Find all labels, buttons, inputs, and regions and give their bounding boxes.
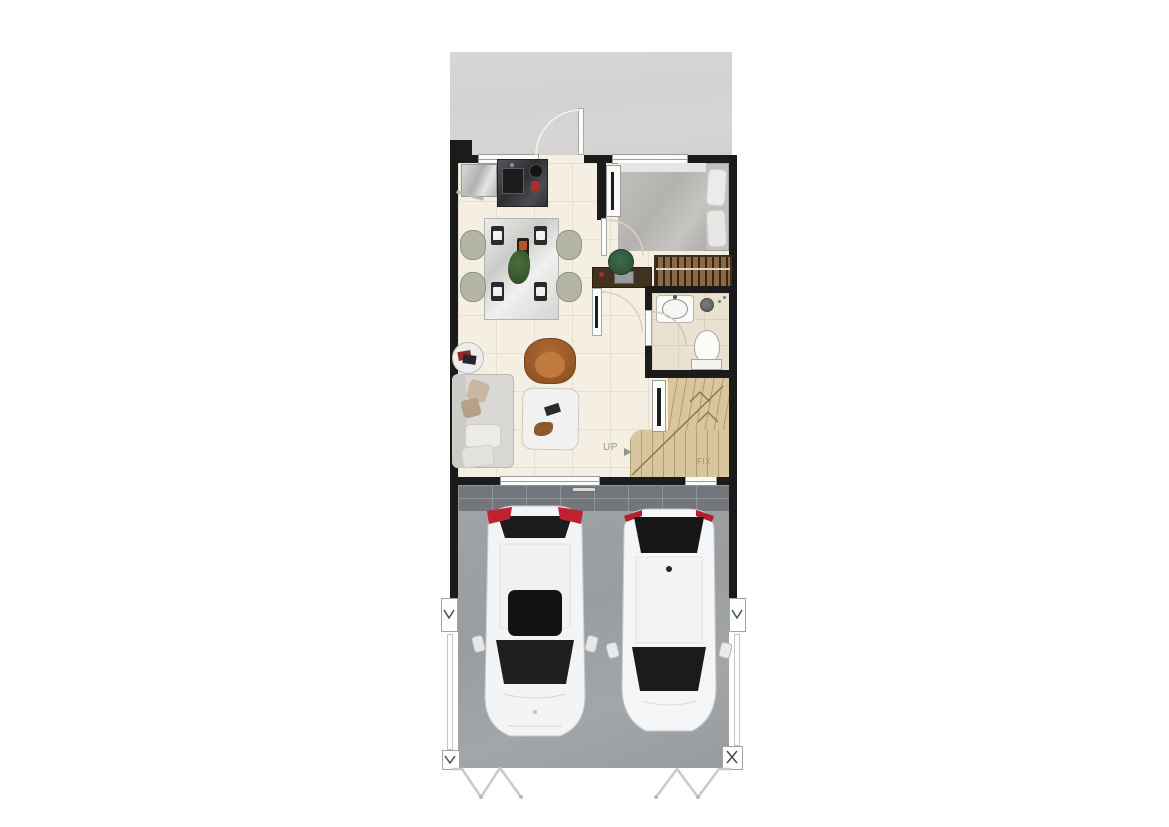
bed-pillow <box>706 210 727 248</box>
entry-door-leaf <box>578 108 584 155</box>
gate-pivot <box>654 795 658 799</box>
bedroom-divider-wall <box>597 163 606 220</box>
cooktop-burner <box>529 164 543 178</box>
bottom-wall-mid <box>600 477 685 485</box>
gate-pivot <box>519 795 523 799</box>
plate <box>493 287 502 296</box>
dining-chair <box>460 230 486 260</box>
column-post-left <box>441 598 458 632</box>
hallway-door-detail <box>595 296 598 328</box>
bedroom-door-leaf <box>601 218 607 256</box>
bathroom-wall-left-lower <box>645 346 652 370</box>
desk-accessory <box>599 272 604 277</box>
bottom-wall-right <box>717 477 737 485</box>
drain-cover <box>572 487 596 492</box>
patio-wall-stub <box>450 140 472 155</box>
stair-railing-detail <box>657 388 661 426</box>
garage-floor <box>458 511 729 768</box>
bed-sheet-fold <box>618 163 706 172</box>
dining-chair <box>556 272 582 302</box>
washbasin <box>662 299 688 319</box>
bottom-wall-left <box>450 477 500 485</box>
bathroom-wall-top <box>645 286 737 293</box>
shower-head <box>700 298 714 312</box>
tray-food <box>519 241 527 250</box>
sofa-cushion <box>461 444 495 469</box>
stairs-upper-run <box>668 378 729 430</box>
wardrobe-rail <box>656 268 730 270</box>
corner-post-right <box>722 746 743 770</box>
kitchen-sink <box>502 168 524 194</box>
toilet-tank <box>691 359 722 370</box>
boundary-line-right <box>734 634 740 746</box>
column-post-right <box>729 598 746 632</box>
plate <box>536 231 545 240</box>
floor-plan: UP FIX <box>0 0 1169 827</box>
right-wall <box>729 155 737 610</box>
plate <box>536 287 545 296</box>
dining-chair <box>556 230 582 260</box>
plate <box>493 231 502 240</box>
boundary-line-left <box>447 634 453 750</box>
faucet <box>510 163 514 167</box>
placemat <box>491 226 504 245</box>
stairs-lower-run <box>630 430 729 477</box>
bathroom-wall-bottom <box>645 370 737 378</box>
placemat <box>534 282 547 301</box>
bathroom-door-leaf <box>645 310 652 346</box>
fix-label: FIX <box>697 457 711 466</box>
top-wall-left <box>450 155 478 163</box>
corner-post-left <box>442 750 460 770</box>
gate-pivot <box>696 795 700 799</box>
gate-zigzag-left <box>453 768 521 797</box>
bedroom-cabinet-detail <box>611 172 614 210</box>
gate-zigzag-right <box>656 769 730 797</box>
placemat <box>534 226 547 245</box>
armchair-seat <box>535 352 565 378</box>
magazine <box>462 354 476 365</box>
shower-valve <box>718 300 721 303</box>
cooktop-pot <box>531 181 540 191</box>
shower-valve <box>723 296 726 299</box>
bed-pillow <box>706 168 728 206</box>
dining-chair <box>460 272 486 302</box>
bathroom-wall-left-upper <box>645 293 652 310</box>
top-wall-right <box>688 155 737 163</box>
coffee-table <box>521 388 579 451</box>
entry-patio <box>450 52 732 155</box>
wardrobe <box>654 255 732 288</box>
placemat <box>491 282 504 301</box>
basin-faucet <box>673 295 677 299</box>
desk-chair <box>608 249 634 275</box>
gate-pivot <box>479 795 483 799</box>
up-label: UP <box>603 442 618 453</box>
top-wall-mid <box>584 155 612 163</box>
bed-duvet <box>618 169 706 251</box>
